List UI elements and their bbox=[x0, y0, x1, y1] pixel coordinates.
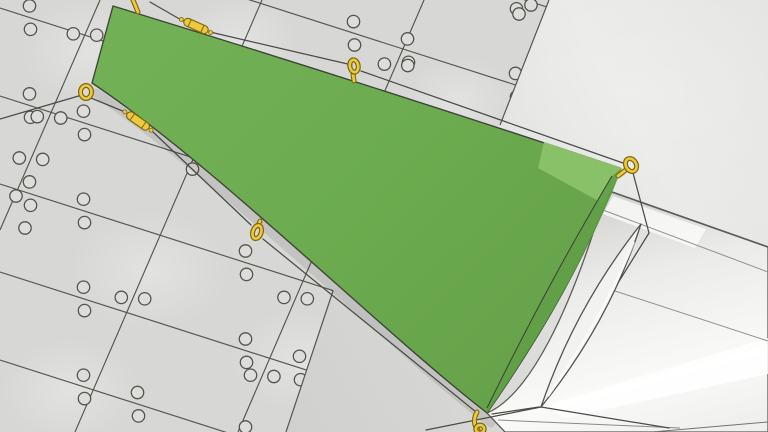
rivet bbox=[240, 268, 252, 280]
rivet bbox=[77, 193, 89, 205]
rivet bbox=[24, 23, 36, 35]
rivet bbox=[78, 128, 90, 140]
rivet bbox=[55, 112, 67, 124]
rivet bbox=[278, 291, 290, 303]
rivet bbox=[131, 386, 143, 398]
rivet bbox=[239, 245, 251, 257]
rivet bbox=[77, 105, 89, 117]
rivet bbox=[301, 293, 313, 305]
rivet bbox=[23, 176, 35, 188]
rivet bbox=[24, 199, 36, 211]
rivet bbox=[402, 59, 414, 71]
rivet bbox=[23, 0, 35, 12]
panel-mottle-blob bbox=[70, 210, 230, 330]
rivet bbox=[37, 153, 49, 165]
rivet bbox=[115, 291, 127, 303]
rivet bbox=[293, 350, 305, 362]
tarp-cover-illustration bbox=[0, 0, 768, 432]
rivet bbox=[244, 369, 256, 381]
rivet bbox=[91, 29, 103, 41]
rivet bbox=[78, 392, 90, 404]
rivet bbox=[378, 58, 390, 70]
rivet bbox=[401, 33, 413, 45]
rivet bbox=[239, 421, 251, 432]
rivet bbox=[139, 293, 151, 305]
rivet bbox=[132, 410, 144, 422]
rivet bbox=[239, 333, 251, 345]
tie-down-cord bbox=[353, 74, 354, 81]
rivet bbox=[348, 39, 360, 51]
rivet bbox=[78, 304, 90, 316]
rivet bbox=[78, 216, 90, 228]
rivet bbox=[19, 222, 31, 234]
rivet bbox=[77, 369, 89, 381]
rivet bbox=[268, 370, 280, 382]
rivet bbox=[10, 190, 22, 202]
rivet bbox=[13, 152, 25, 164]
illustration-canvas bbox=[0, 0, 768, 432]
rivet bbox=[67, 28, 79, 40]
rivet bbox=[31, 110, 43, 122]
rivet bbox=[513, 8, 525, 20]
rivet bbox=[77, 281, 89, 293]
rivet bbox=[240, 356, 252, 368]
rivet bbox=[347, 15, 359, 27]
rivet bbox=[23, 88, 35, 100]
rivet bbox=[525, 0, 537, 11]
